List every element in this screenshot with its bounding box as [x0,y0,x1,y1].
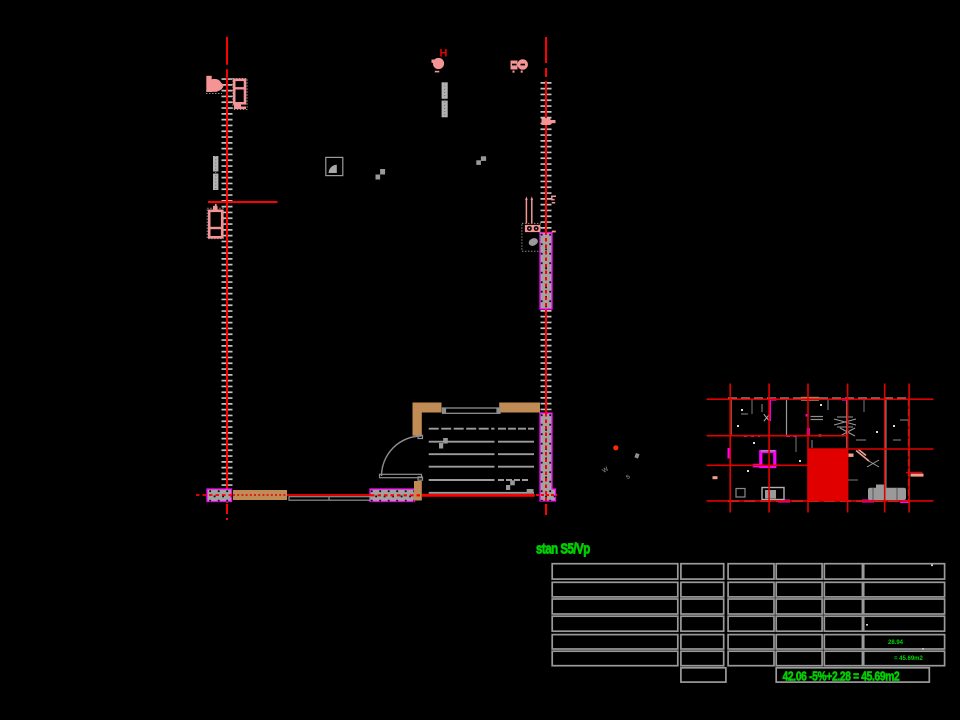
svg-text:stan S5/Vp: stan S5/Vp [536,540,590,557]
svg-text:28.94: 28.94 [888,640,904,646]
svg-text:= 45.69m2: = 45.69m2 [894,656,924,662]
svg-text:H: H [440,48,448,60]
svg-text:42.06 -5%+2.28 = 45.69m2: 42.06 -5%+2.28 = 45.69m2 [783,671,900,684]
